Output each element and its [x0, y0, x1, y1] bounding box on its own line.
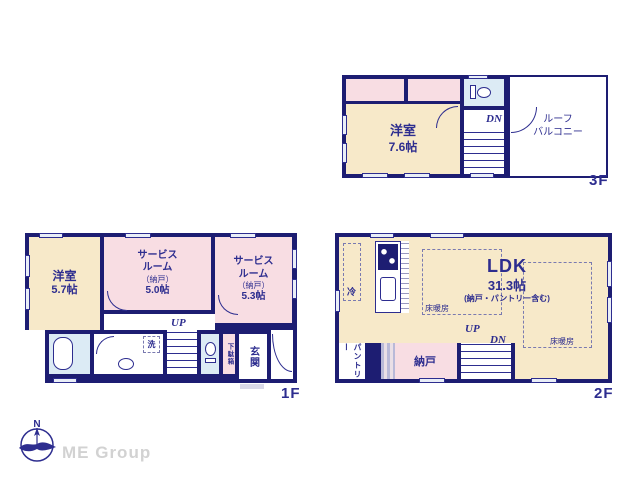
- window-marker: [39, 233, 63, 238]
- toilet-room-3f: [464, 79, 504, 106]
- counter-hatch: [401, 241, 409, 313]
- stairs-up-label: UP: [465, 323, 480, 335]
- sink-icon: [380, 277, 396, 301]
- toilet-icon: [205, 342, 216, 356]
- stairs-dn-label: DN: [486, 113, 502, 125]
- entrance-step: [240, 384, 264, 389]
- window-marker: [342, 143, 347, 163]
- pantry-label: パントリー: [341, 343, 363, 379]
- washroom: 洗: [94, 334, 163, 374]
- window-marker: [470, 173, 494, 178]
- room-note: （納戸）: [138, 275, 178, 285]
- floor-heating-label: 床暖房: [425, 303, 449, 314]
- toilet-icon: [470, 85, 476, 99]
- room-size: 7.6帖: [389, 140, 418, 155]
- window-marker: [25, 288, 30, 310]
- floor-label-1f: 1F: [281, 385, 301, 402]
- stove-icon: [378, 244, 398, 270]
- window-marker: [292, 249, 297, 269]
- room-size: 5.7帖: [51, 284, 77, 298]
- staircase: [461, 343, 511, 379]
- fridge-label: 冷: [347, 285, 356, 298]
- window-marker: [531, 378, 557, 383]
- window-marker: [404, 173, 430, 178]
- window-marker: [230, 233, 256, 238]
- plan-notch: [25, 330, 45, 383]
- room-name: ルーム: [234, 269, 274, 282]
- washer-label: 洗: [148, 339, 156, 350]
- room-name: LDK: [447, 255, 567, 278]
- closet: [408, 79, 460, 101]
- closet: [346, 79, 404, 101]
- floor-plan-3f: 洋室 7.6帖 DN ルーフ バルコニー: [342, 75, 608, 178]
- toilet-room-1f: [201, 334, 219, 374]
- room-name: サービス: [234, 256, 274, 269]
- balcony-label: ルーフ: [533, 114, 583, 127]
- room-name: サービス: [138, 250, 178, 263]
- staircase: [167, 330, 197, 374]
- window-marker: [53, 378, 77, 383]
- room-size: 5.3帖: [234, 291, 274, 304]
- room-note: （納戸）: [234, 281, 274, 291]
- stairs-up-label: UP: [171, 317, 186, 329]
- shoe-box: 下駄箱: [223, 334, 235, 374]
- floor-label-3f: 3F: [589, 172, 609, 189]
- porch: [271, 330, 293, 379]
- room-name: 洋室: [389, 123, 418, 139]
- floor-heating-label: 床暖房: [550, 336, 574, 347]
- room-size: 31.3帖: [447, 278, 567, 294]
- stairs-dn-label: DN: [490, 334, 506, 346]
- storage-label: 納戸: [414, 353, 436, 369]
- balcony-label: バルコニー: [533, 127, 583, 140]
- shoe-box-label: 下駄箱: [224, 343, 234, 366]
- toilet-icon: [477, 87, 491, 98]
- floor-plan-1f: 洋室 5.7帖 サービス ルーム （納戸） 5.0帖 サービス ルーム （納戸）…: [25, 233, 297, 383]
- floor-label-2f: 2F: [594, 385, 614, 402]
- window-marker: [25, 255, 30, 277]
- brand-logo-text: ME Group: [62, 443, 151, 463]
- window-marker: [607, 261, 612, 287]
- window-marker: [362, 173, 388, 178]
- window-marker: [292, 279, 297, 299]
- room-note: (納戸・パントリー含む): [447, 294, 567, 304]
- ldk-label-block: LDK 31.3帖 (納戸・パントリー含む): [447, 255, 567, 304]
- bathroom: [49, 334, 90, 374]
- floorplan-canvas: 洋室 7.6帖 DN ルーフ バルコニー 3F: [0, 0, 640, 480]
- washer-space: 洗: [143, 336, 160, 353]
- entrance-label: 玄関: [246, 346, 261, 368]
- floor-plan-2f: 冷 床暖房 床暖房 LDK 31.3帖 (納戸・パントリー含む) パントリー 納…: [335, 233, 612, 383]
- hallway: [104, 314, 215, 330]
- door-arc: [96, 336, 114, 354]
- compass-icon: N: [12, 415, 62, 467]
- room-bedroom-1f: 洋室 5.7帖: [29, 237, 100, 330]
- window-marker: [419, 378, 445, 383]
- entrance-door-arc: [272, 334, 292, 372]
- toilet-icon: [205, 358, 216, 363]
- window-marker: [468, 75, 488, 79]
- room-name: 洋室: [51, 269, 77, 284]
- window-marker: [342, 115, 347, 135]
- window-marker: [335, 290, 340, 312]
- washbasin-icon: [118, 358, 134, 370]
- pantry: パントリー: [339, 343, 365, 379]
- closet-hatch: [381, 343, 395, 379]
- room-ldk-extension: [515, 343, 608, 379]
- entrance: 玄関: [239, 334, 267, 379]
- window-marker: [370, 233, 394, 238]
- room-size: 5.0帖: [138, 285, 178, 298]
- storage-room: 納戸: [381, 343, 457, 379]
- room-name: ルーム: [138, 262, 178, 275]
- window-marker: [125, 233, 151, 238]
- window-marker: [607, 297, 612, 323]
- bathtub-icon: [53, 337, 73, 370]
- window-marker: [430, 233, 464, 238]
- staircase: [464, 132, 504, 174]
